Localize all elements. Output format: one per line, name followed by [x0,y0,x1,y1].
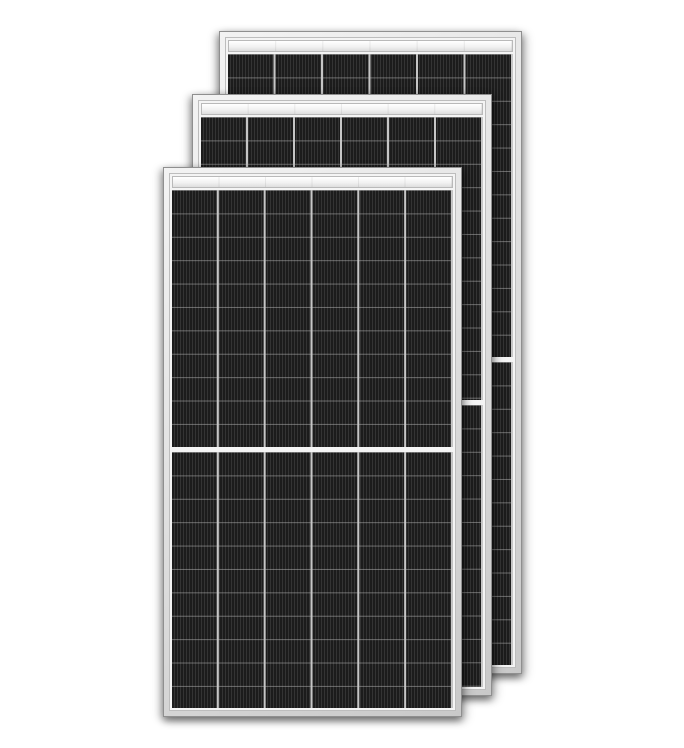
cell-half-lower [172,452,453,709]
product-image [0,0,684,748]
panel-inner-sheet [169,173,456,711]
panel-top-rail [172,176,453,188]
cell-half-upper [172,190,453,447]
panel-cell-area [172,190,453,708]
panel-top-rail [228,40,513,52]
solar-panel-front [163,167,462,717]
panel-top-rail [201,103,483,115]
